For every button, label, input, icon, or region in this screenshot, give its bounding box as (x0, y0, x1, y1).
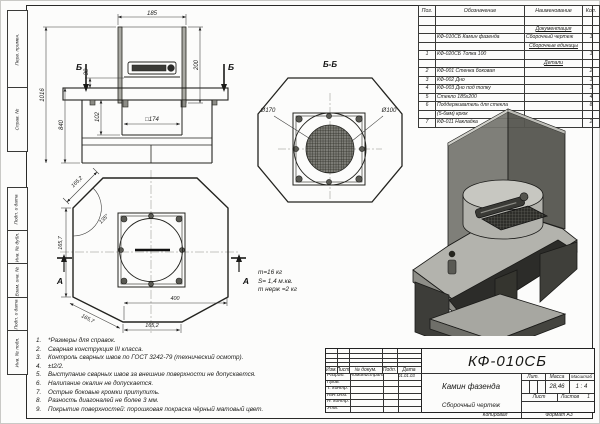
sig-role: Утв. (326, 406, 351, 414)
mesh-circle-100 (306, 125, 354, 173)
scale-value: 1 : 4 (569, 380, 594, 394)
note-item: Острые боковые кромки притупить. (36, 389, 321, 398)
dim-102-label: 102 (95, 111, 101, 122)
cell-oboznachenie (436, 42, 525, 51)
firebox-left-rail (118, 27, 122, 103)
cell-naimenovanie: Детали (525, 59, 583, 68)
document-number: КФ-010СБ (421, 349, 594, 374)
cell-naimenovanie (525, 17, 583, 26)
mount-tab (123, 100, 128, 107)
cell-poz: 4 (419, 85, 436, 94)
parts-table-row: 1 КФ-020СБ Топка 100 1 (419, 51, 600, 60)
cell-kol (583, 17, 600, 26)
frame-label: Подп. и дата (15, 194, 20, 224)
cell-oboznachenie: КФ-002 Дно (436, 76, 525, 85)
signature-rows: Разраб. Администратор 01.01.03 Пров. Т. … (326, 373, 421, 412)
cell-poz: 1 (419, 51, 436, 60)
frame-cell-sprav: Справ. № (7, 87, 28, 152)
mass-note-line: m нерж =2 кг (258, 286, 297, 295)
cell-oboznachenie: КФ-020СБ Топка 100 (436, 51, 525, 60)
dim-30-label: 30 (84, 68, 90, 75)
cell-oboznachenie: КФ-010СБ Камин фазенда (436, 34, 525, 43)
cell-kol: 1 (583, 34, 600, 43)
section-view-bb: Б-Б Ø170 Ø100 (250, 55, 410, 205)
section-mark-a-left: А (56, 254, 72, 286)
cell-kol: 2 (583, 68, 600, 77)
col-header-oboznachenie: Обозначение (436, 6, 525, 17)
note-item: Разность диагоналей не более 3 мм. (36, 397, 321, 406)
col-header-kol: Кол. (583, 6, 600, 17)
cell-naimenovanie (525, 68, 583, 77)
cell-kol (583, 59, 600, 68)
product-name: Камин фазенда (442, 382, 500, 391)
signature-row: Утв. (326, 406, 421, 413)
parts-table-row: 2 КФ-001 Стенка боковая 2 (419, 68, 600, 77)
firebox-right-rail (182, 27, 186, 103)
dim-d170-label: Ø170 (260, 108, 276, 114)
frame-label: Перв. примен. (15, 34, 20, 66)
col-header-naimenovanie: Наименование (525, 6, 583, 17)
notes-list: *Размеры для справок.Сварная конструкция… (36, 337, 321, 414)
cell-naimenovanie (525, 85, 583, 94)
note-item: Налипание окалин не допускается. (36, 380, 321, 389)
fireplace-3d (413, 109, 577, 336)
dim-185-label: 185 (147, 11, 158, 17)
cell-oboznachenie (436, 25, 525, 34)
org-cell (521, 401, 594, 412)
cell-poz (419, 59, 436, 68)
front-view: 185 200 □174 102 30 840 1016 Б Б (35, 8, 247, 176)
cell-poz (419, 17, 436, 26)
frame-cell-inv-podl: Инв. № подл. (7, 330, 28, 375)
section-label-b: Б (228, 62, 234, 72)
top-view: 165,2 135° 165,7 165,7 400 165,2 А А (35, 168, 265, 343)
dim-135-label: 135° (98, 213, 111, 226)
cell-kol: 1 (583, 51, 600, 60)
cell-naimenovanie (525, 76, 583, 85)
format-label: Формат А3 (528, 412, 590, 418)
section-view-title: Б-Б (323, 60, 337, 69)
mount-tab (212, 100, 217, 105)
parts-table-row: Сборочные единицы (419, 42, 600, 51)
latch-knob (449, 251, 455, 257)
title-block: Изм. Лист № докум. Подп. Дата Разраб. Ад… (325, 348, 595, 413)
cell-poz (419, 34, 436, 43)
note-item: Покрытие поверхностей: порошковая покрас… (36, 406, 321, 415)
cell-oboznachenie (436, 17, 525, 26)
handle-bar (132, 65, 166, 71)
parts-table-row: Детали (419, 59, 600, 68)
col-header-poz: Поз. (419, 6, 436, 17)
note-item: Сварная конструкция III класса. (36, 346, 321, 355)
cell-oboznachenie: Стекло 185х200 (436, 93, 525, 102)
cell-poz: 5 (419, 93, 436, 102)
mass-note-line: S= 1,4 м.кв. (258, 278, 297, 287)
parts-table-header: Поз. Обозначение Наименование Кол. (419, 6, 600, 17)
mass-value: 28,46 (545, 380, 570, 394)
section-label-b: Б (76, 62, 82, 72)
dim-174-label: □174 (145, 117, 159, 123)
mass-note-line: m=16 кг (258, 269, 297, 278)
handle-knob (168, 65, 175, 72)
frame-cell-perv-primen: Перв. примен. (7, 10, 28, 89)
table-top-slab (63, 88, 228, 100)
cell-naimenovanie: Сборочные единицы (525, 42, 583, 51)
section-label-a: А (242, 276, 249, 286)
dim-200-label: 200 (194, 59, 200, 71)
cell-kol (583, 42, 600, 51)
drawing-sheet: Перв. примен. Справ. № Подп. и дата Инв.… (0, 0, 600, 424)
section-label-a: А (56, 276, 63, 286)
sig-name (349, 406, 384, 414)
cell-naimenovanie (525, 51, 583, 60)
cell-kol: 1 (583, 85, 600, 94)
note-item: *Размеры для справок. (36, 337, 321, 346)
cell-oboznachenie: КФ-001 Стенка боковая (436, 68, 525, 77)
cell-poz (419, 42, 436, 51)
copied-label: Копировал (455, 412, 535, 418)
sig-date (397, 406, 422, 414)
dim-840-label: 840 (59, 119, 65, 130)
latch-plate (448, 260, 456, 274)
cell-kol: 4 (583, 93, 600, 102)
mount-tab (90, 100, 95, 105)
frame-label: Инв. № дубл. (15, 233, 20, 263)
dim-165-7-left-label: 165,7 (58, 235, 64, 249)
mass-note: m=16 кгS= 1,4 м.кв.m нерж =2 кг (258, 269, 297, 295)
frame-label: Взам. инв. № (15, 266, 20, 296)
document-type: Сборочный чертеж (442, 402, 500, 409)
parts-table-row: 5 Стекло 185х200 4 (419, 93, 600, 102)
note-item: Выступание сварных швов за внешние повер… (36, 371, 321, 380)
cell-kol (583, 25, 600, 34)
parts-table-row: КФ-010СБ Камин фазенда Сборочный чертеж … (419, 34, 600, 43)
frame-cell-inv-dubl: Инв. № дубл. (7, 230, 28, 265)
frame-label: Справ. № (15, 109, 20, 131)
parts-table-row: Документация (419, 25, 600, 34)
cell-poz: 2 (419, 68, 436, 77)
cell-poz (419, 25, 436, 34)
cell-poz: 3 (419, 76, 436, 85)
cell-naimenovanie (525, 93, 583, 102)
cell-oboznachenie (436, 59, 525, 68)
isometric-view (395, 106, 592, 336)
parts-table-row: 4 КФ-003 Дно под топку 1 (419, 85, 600, 94)
dim-165-2-bottom-label: 165,2 (145, 323, 159, 329)
frame-cell-podp-data-1: Подп. и дата (7, 187, 28, 232)
frame-cell-podp-data-2: Подп. и дата (7, 297, 28, 332)
parts-table-row: 3 КФ-002 Дно 1 (419, 76, 600, 85)
note-item: Контроль сварных швов по ГОСТ 3242-79 (т… (36, 354, 321, 363)
cell-naimenovanie: Сборочный чертеж (525, 34, 583, 43)
cell-naimenovanie: Документация (525, 25, 583, 34)
frame-label: Подп. и дата (15, 299, 20, 329)
cell-oboznachenie: КФ-003 Дно под топку (436, 85, 525, 94)
parts-table-row (419, 17, 600, 26)
dim-400-label: 400 (171, 296, 180, 302)
dim-1016-label: 1016 (40, 88, 46, 102)
section-mark-a-right: А (231, 254, 249, 286)
cell-kol: 1 (583, 76, 600, 85)
frame-label: Инв. № подл. (15, 338, 20, 368)
frame-cell-vzam-inv: Взам. инв. № (7, 263, 28, 299)
